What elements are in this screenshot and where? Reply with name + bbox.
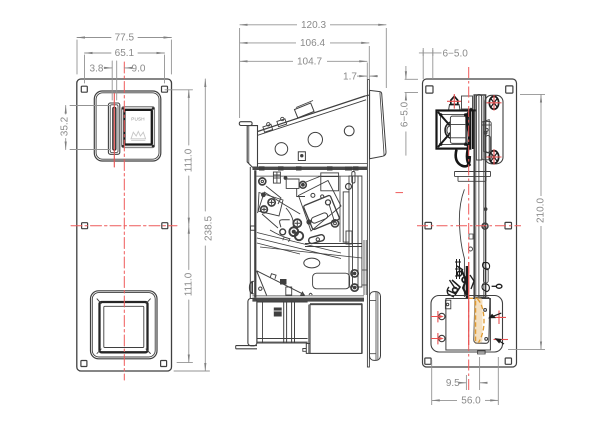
svg-text:1.7: 1.7	[343, 72, 357, 83]
svg-text:6−5.0: 6−5.0	[400, 101, 411, 127]
svg-text:106.4: 106.4	[300, 38, 325, 49]
svg-text:111.0: 111.0	[183, 148, 194, 172]
svg-text:9.5: 9.5	[446, 378, 460, 389]
svg-text:120.3: 120.3	[301, 20, 326, 31]
svg-text:65.1: 65.1	[115, 48, 135, 59]
svg-text:111.0: 111.0	[183, 272, 194, 296]
svg-text:35.2: 35.2	[60, 116, 71, 136]
svg-text:56.0: 56.0	[461, 396, 481, 407]
svg-text:104.7: 104.7	[297, 57, 322, 68]
svg-text:77.5: 77.5	[115, 33, 135, 44]
svg-text:238.5: 238.5	[204, 216, 215, 241]
svg-text:3.8: 3.8	[90, 64, 104, 75]
svg-text:210.0: 210.0	[536, 198, 547, 223]
svg-text:PUSH: PUSH	[131, 117, 145, 122]
svg-text:6−5.0: 6−5.0	[443, 49, 469, 60]
svg-text:9.0: 9.0	[132, 64, 146, 75]
